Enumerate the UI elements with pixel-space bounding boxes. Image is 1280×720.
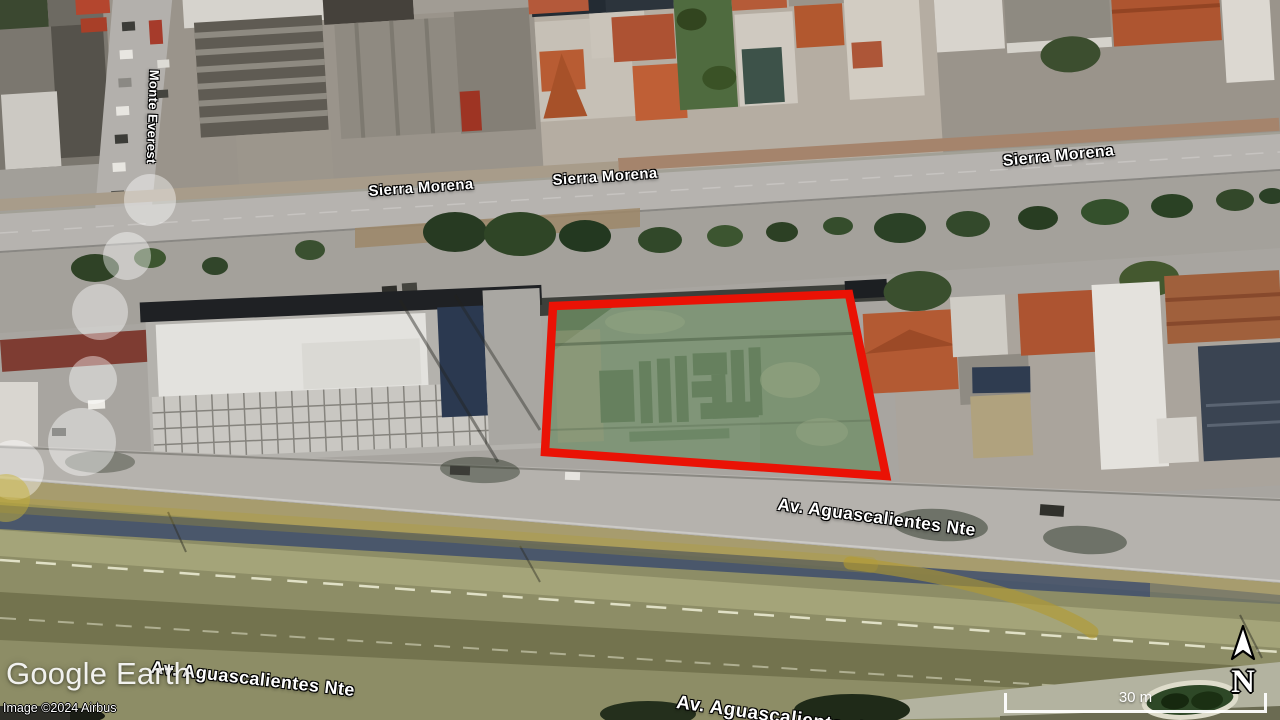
parcel-outline[interactable] [545, 294, 886, 476]
north-letter: N [1220, 667, 1266, 697]
google-earth-logo: Google Earth [6, 656, 191, 692]
imagery-copyright: Image ©2024 Airbus [3, 701, 116, 715]
north-indicator[interactable]: N [1220, 624, 1266, 697]
north-arrow-icon [1223, 624, 1263, 662]
satellite-imagery [0, 0, 1280, 720]
industrial-warehouse [140, 285, 549, 465]
google-earth-viewport[interactable]: Sierra Morena Sierra Morena Sierra Moren… [0, 0, 1280, 720]
